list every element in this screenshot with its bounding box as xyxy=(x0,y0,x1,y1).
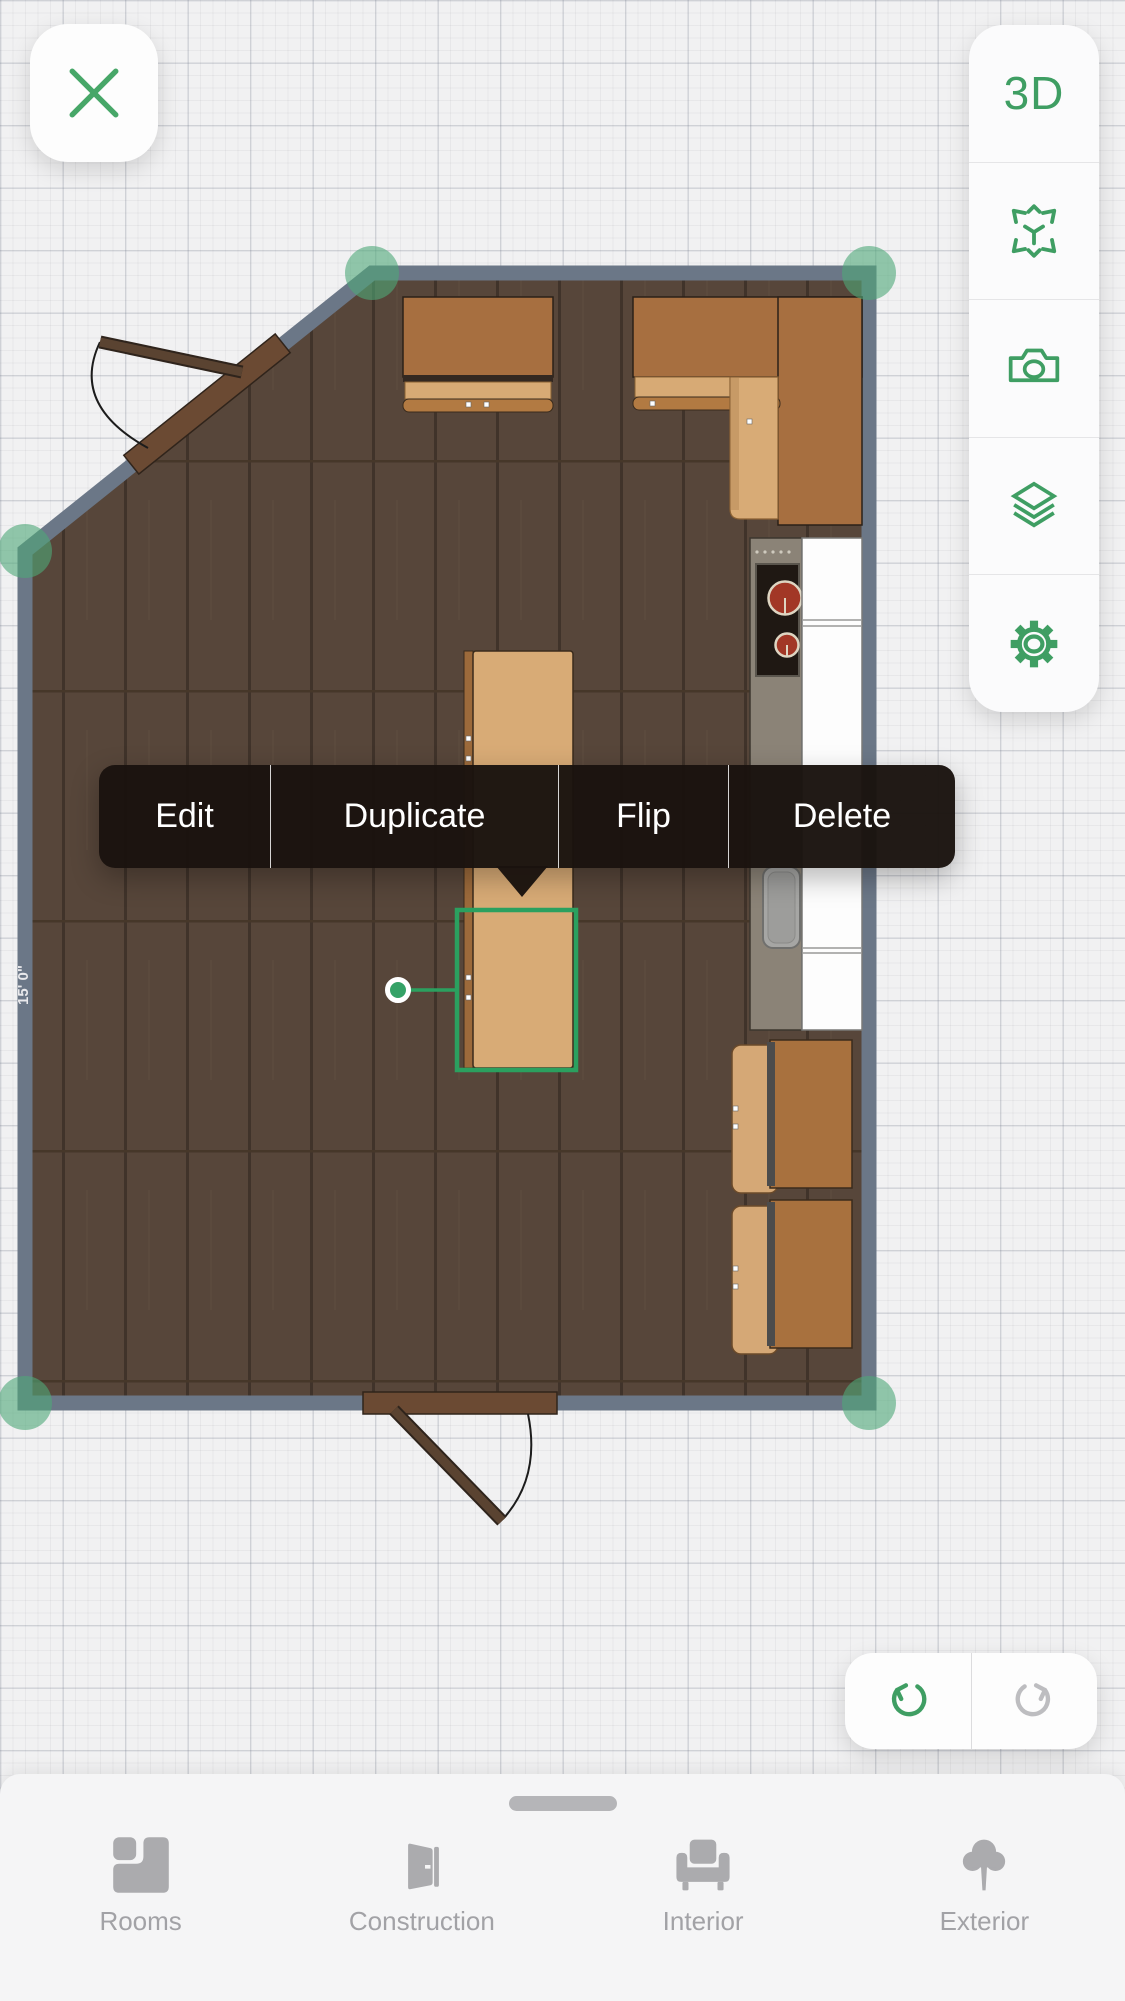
camera-icon xyxy=(1006,340,1062,396)
view-toolbar: 3D xyxy=(969,25,1099,712)
floors-button[interactable] xyxy=(969,437,1099,575)
cabinet-right-1[interactable] xyxy=(732,1040,852,1193)
menu-item-edit[interactable]: Edit xyxy=(99,765,270,868)
cabinet-top[interactable] xyxy=(403,297,553,412)
tab-exterior[interactable]: Exterior xyxy=(844,1836,1125,1937)
close-button[interactable] xyxy=(30,24,158,162)
corner-handle[interactable] xyxy=(345,246,399,300)
gear-icon xyxy=(1006,616,1062,672)
undo-button[interactable] xyxy=(845,1653,971,1749)
undo-arrow-icon xyxy=(883,1676,933,1726)
sheet-drag-handle[interactable] xyxy=(509,1796,617,1811)
close-icon xyxy=(65,64,123,122)
cabinet-right-2[interactable] xyxy=(732,1200,852,1354)
rotate-handle[interactable] xyxy=(388,980,409,1001)
snapshot-button[interactable] xyxy=(969,299,1099,437)
redo-button[interactable] xyxy=(971,1653,1098,1749)
tab-rooms[interactable]: Rooms xyxy=(0,1836,281,1937)
floor-planner-screen: 15' 0" 3D xyxy=(0,0,1125,2001)
view-3d-label: 3D xyxy=(1004,66,1065,120)
view-3d-button[interactable]: 3D xyxy=(969,25,1099,162)
context-menu-caret xyxy=(496,866,548,897)
corner-handle[interactable] xyxy=(842,1376,896,1430)
bottom-sheet: Rooms Construction xyxy=(0,1774,1125,2001)
wall-dimension-label: 15' 0" xyxy=(15,965,32,1005)
tree-icon xyxy=(955,1836,1013,1894)
door-bottom[interactable] xyxy=(363,1392,557,1521)
door-icon xyxy=(393,1836,451,1894)
menu-item-delete[interactable]: Delete xyxy=(728,765,955,868)
stove-cooktop xyxy=(756,564,799,676)
corner-handle[interactable] xyxy=(0,524,52,578)
corner-handle[interactable] xyxy=(0,1376,52,1430)
tab-interior-label: Interior xyxy=(663,1906,744,1937)
ar-view-button[interactable] xyxy=(969,162,1099,300)
history-toolbar xyxy=(845,1653,1097,1749)
redo-arrow-icon xyxy=(1009,1676,1059,1726)
bottom-nav: Rooms Construction xyxy=(0,1836,1125,1937)
settings-button[interactable] xyxy=(969,574,1099,712)
menu-item-duplicate[interactable]: Duplicate xyxy=(270,765,558,868)
tab-rooms-label: Rooms xyxy=(99,1906,181,1937)
corner-handle[interactable] xyxy=(842,246,896,300)
tab-construction-label: Construction xyxy=(349,1906,495,1937)
tab-exterior-label: Exterior xyxy=(940,1906,1030,1937)
tab-interior[interactable]: Interior xyxy=(563,1836,844,1937)
layers-icon xyxy=(1006,478,1062,534)
menu-item-flip[interactable]: Flip xyxy=(558,765,728,868)
tab-construction[interactable]: Construction xyxy=(281,1836,562,1937)
ar-cube-arrows-icon xyxy=(1007,204,1061,258)
rooms-icon xyxy=(112,1836,170,1894)
context-menu: Edit Duplicate Flip Delete xyxy=(99,765,955,868)
armchair-icon xyxy=(674,1836,732,1894)
